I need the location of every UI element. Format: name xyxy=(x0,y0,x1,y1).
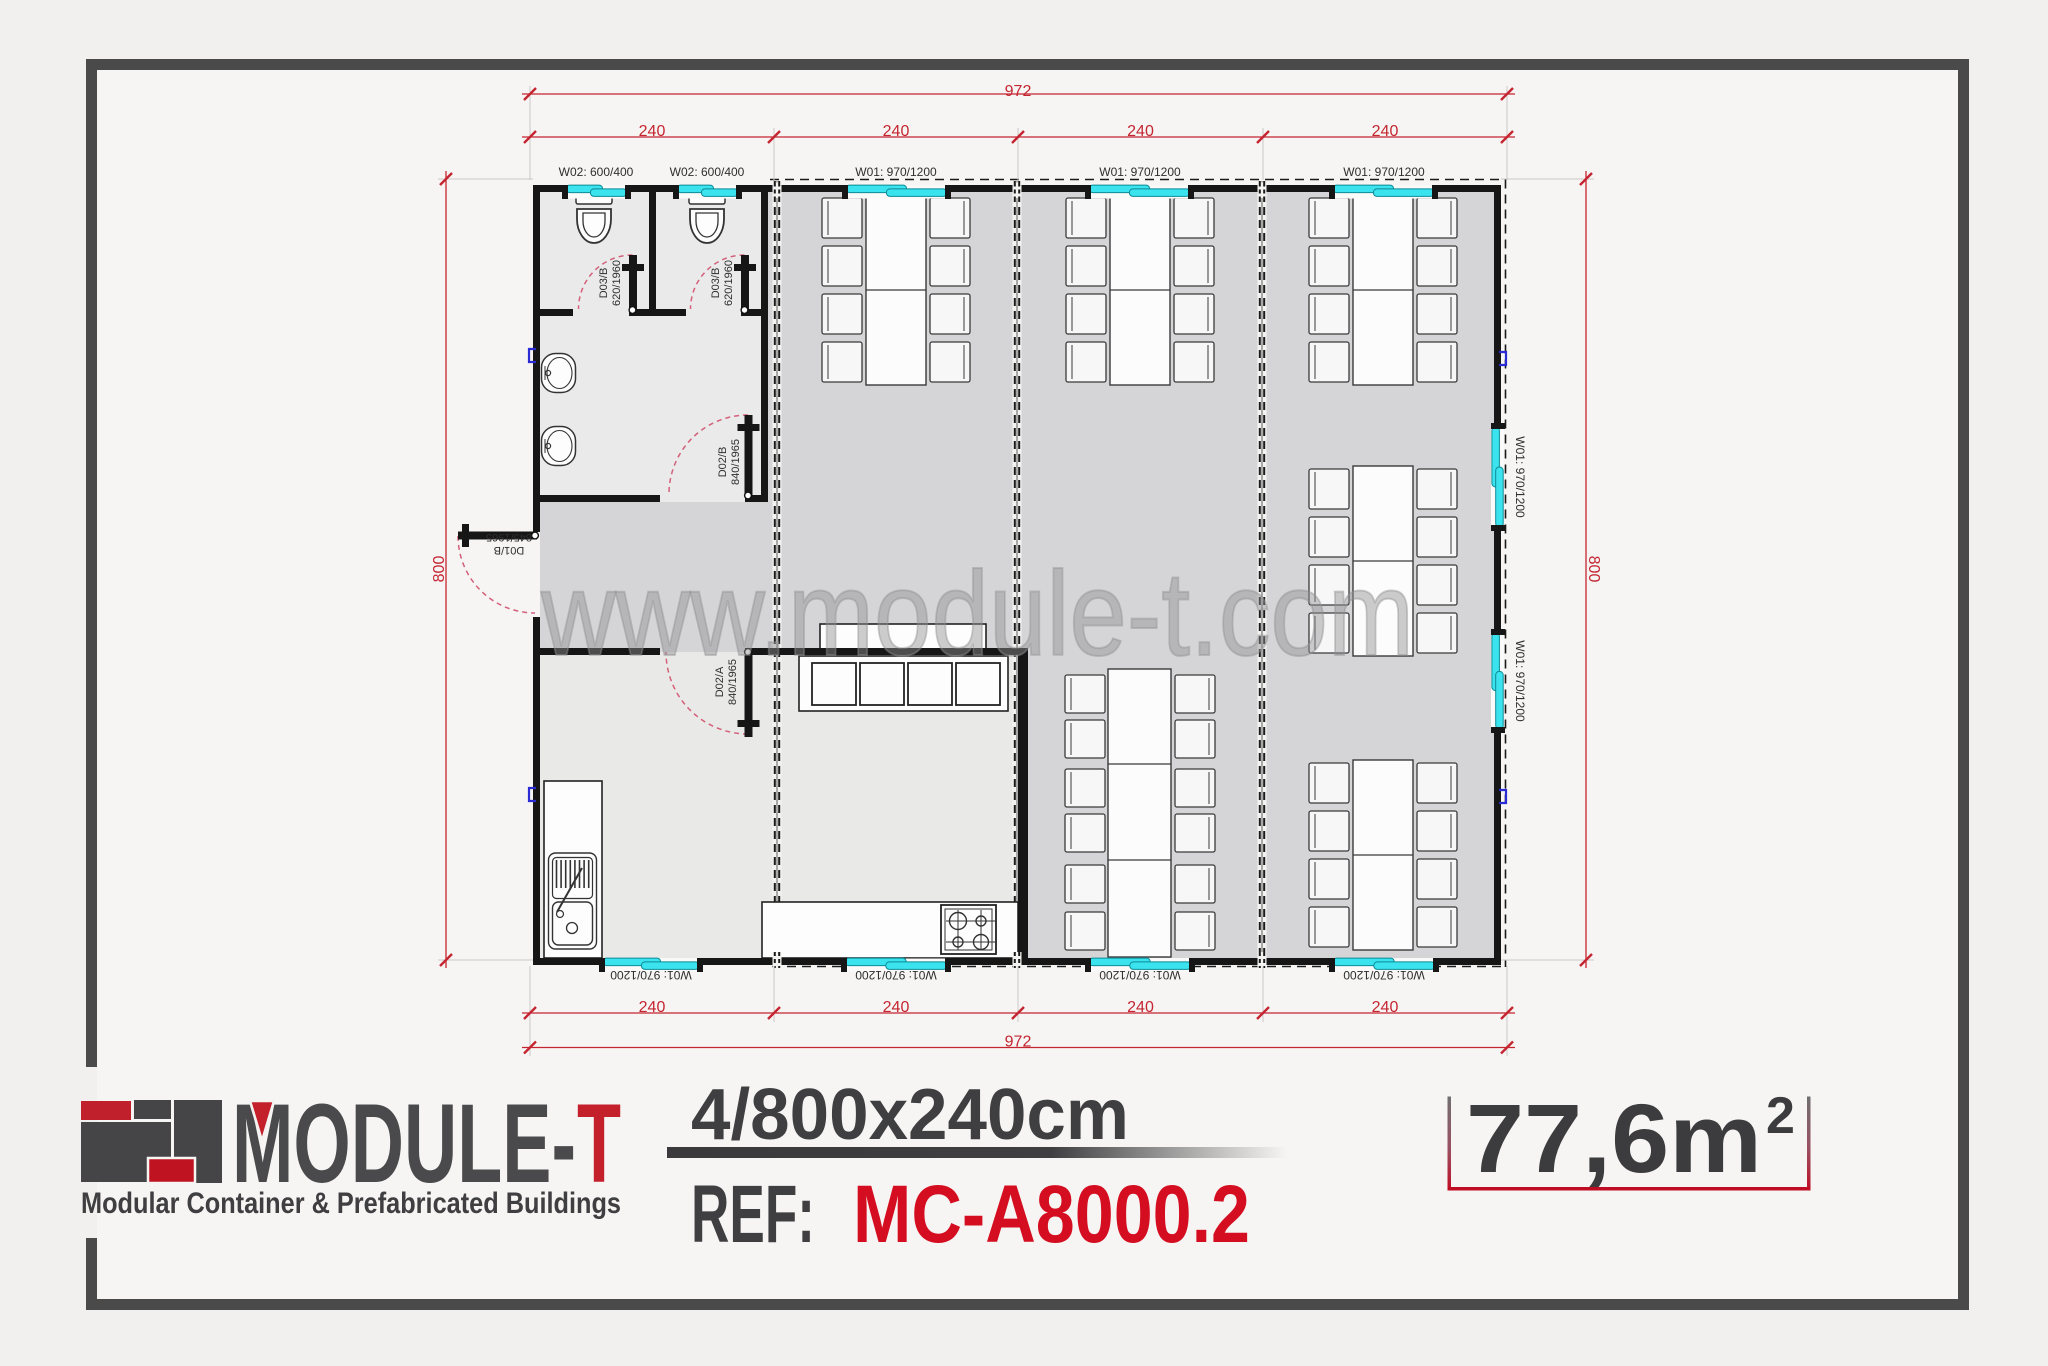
svg-text:240: 240 xyxy=(883,123,910,140)
svg-text:REF:: REF: xyxy=(691,1169,815,1260)
svg-text:Modular Container & Prefabrica: Modular Container & Prefabricated Buildi… xyxy=(81,1187,621,1220)
svg-text:D03/B: D03/B xyxy=(598,268,610,299)
svg-text:4/800x240cm: 4/800x240cm xyxy=(691,1075,1129,1155)
svg-text:W01: 970/1200: W01: 970/1200 xyxy=(610,968,692,982)
svg-text:W01: 970/1200: W01: 970/1200 xyxy=(1343,165,1425,179)
svg-text:W02: 600/400: W02: 600/400 xyxy=(559,165,634,179)
svg-text:www.module-t.com: www.module-t.com xyxy=(540,547,1414,681)
svg-text:D02/B: D02/B xyxy=(717,447,729,478)
svg-text:972: 972 xyxy=(1005,83,1032,100)
svg-text:D01/B: D01/B xyxy=(494,544,525,556)
svg-text:840/1965: 840/1965 xyxy=(730,439,742,485)
svg-text:620/1960: 620/1960 xyxy=(723,260,735,306)
svg-text:W01: 970/1200: W01: 970/1200 xyxy=(855,968,937,982)
svg-text:W01: 970/1200: W01: 970/1200 xyxy=(1513,436,1527,518)
svg-text:620/1960: 620/1960 xyxy=(611,260,623,306)
svg-text:972: 972 xyxy=(1005,1034,1032,1051)
svg-text:800: 800 xyxy=(431,556,448,583)
svg-text:W01: 970/1200: W01: 970/1200 xyxy=(1099,165,1181,179)
svg-text:800: 800 xyxy=(1585,556,1602,583)
svg-text:240: 240 xyxy=(1127,123,1154,140)
svg-text:240: 240 xyxy=(883,999,910,1016)
svg-text:240: 240 xyxy=(639,123,666,140)
svg-text:2: 2 xyxy=(1766,1087,1795,1145)
svg-text:W01: 970/1200: W01: 970/1200 xyxy=(1513,640,1527,722)
svg-text:240: 240 xyxy=(1127,999,1154,1016)
svg-text:MC-A8000.2: MC-A8000.2 xyxy=(853,1169,1250,1260)
svg-text:W01: 970/1200: W01: 970/1200 xyxy=(1343,968,1425,982)
svg-text:W02: 600/400: W02: 600/400 xyxy=(670,165,745,179)
svg-text:77,6m: 77,6m xyxy=(1466,1084,1762,1193)
svg-text:W01: 970/1200: W01: 970/1200 xyxy=(855,165,937,179)
svg-text:240: 240 xyxy=(1372,999,1399,1016)
svg-text:240: 240 xyxy=(1372,123,1399,140)
svg-text:D03/B: D03/B xyxy=(710,268,722,299)
svg-text:W01: 970/1200: W01: 970/1200 xyxy=(1099,968,1181,982)
svg-text:240: 240 xyxy=(639,999,666,1016)
svg-text:845/1965: 845/1965 xyxy=(486,531,532,543)
